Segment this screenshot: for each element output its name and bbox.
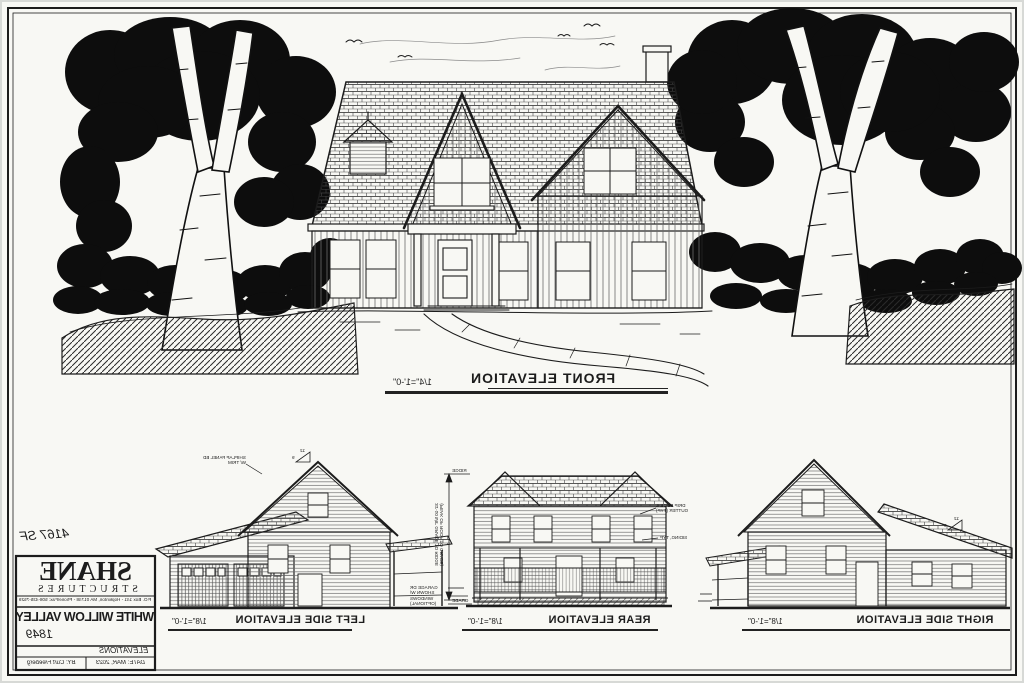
area-label: 4167 SF [20,526,70,543]
pitch-marker-left: 12 [300,448,305,453]
date-label: DATE: MAR, 2023 [87,660,153,666]
left-elevation-title: LEFT SIDE ELEVATION [235,615,365,627]
title-rule [462,629,658,631]
pitch-marker-right: 12 [954,516,959,521]
company-address: P.O. Box 141 - Hopkinton, MA 01748 - Pho… [17,598,154,603]
left-elevation-note: SHIPLAP PANEL BD W/ TRIM [190,455,246,466]
title-underline [488,388,668,389]
left-elevation-scale: 1/8"=1'-0" [172,618,207,626]
front-elevation-title: FRONT ELEVATION [470,371,670,386]
title-rule [742,629,1010,631]
title-rule [385,391,668,394]
plan-number: 1849 [26,628,53,641]
rear-dim-top-label: RIDGE [452,468,467,473]
right-elevation-title: RIGHT SIDE ELEVATION [856,615,993,627]
rear-siding-note: SIDING, TYP [660,535,687,540]
right-elevation-scale: 1/8"=1'-0" [748,618,783,626]
rear-eave-note: DRIP EDGE & GUTTER (TYP) [656,503,688,514]
blueprint-sheet: 1/4"=1'-0" FRONT ELEVATION 1/8"=1'-0" LE… [0,0,1024,683]
title-rule [168,629,352,631]
pitch-run-right: 9 [944,523,947,528]
company-subname: STRUCTURES [16,585,155,596]
drawn-by: BY: Curt Freeberg [17,660,85,666]
pitch-run-left: 9 [292,455,295,460]
rear-elevation-scale: 1/8"=1'-0" [468,618,503,626]
front-elevation-scale: 1/4"=1'-0" [393,378,432,387]
project-name: WHITE WILLOW VALLEY [16,611,155,624]
rear-dim-bottom-label: GRADE [452,598,468,603]
sheet-title: ELEVATIONS [16,647,148,655]
rear-elevation-title: REAR ELEVATION [548,615,651,627]
company-name: SHANE [16,557,155,585]
rear-dimension-text: 31'-10 5/8" GRADE TO RIDGE (PEAK OF ROOF… [434,476,445,594]
